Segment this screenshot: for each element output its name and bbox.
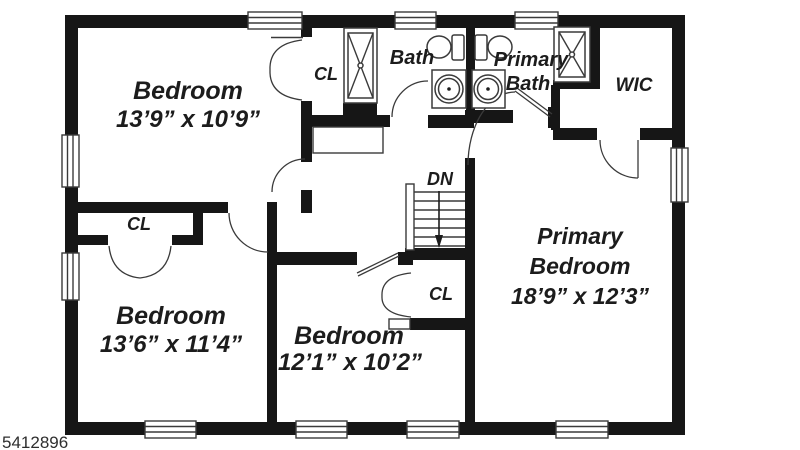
bedroom-bottom-left-dims: 13’6” x 11’4” (100, 331, 242, 358)
bedroom-top-left-dims: 13’9” x 10’9” (116, 106, 260, 133)
wall-segment (65, 15, 78, 435)
window (671, 148, 688, 202)
wall-segment (305, 115, 390, 127)
window (515, 12, 558, 29)
window (62, 135, 79, 187)
window (62, 253, 79, 300)
window (556, 421, 608, 438)
wall-segment (551, 85, 560, 130)
wall-segment (465, 158, 475, 422)
primary-bath-label-1: Primary (494, 49, 569, 71)
wall-segment (640, 128, 672, 140)
floor-plan-page: Bedroom 13’9” x 10’9” Bedroom 13’6” x 11… (0, 0, 800, 450)
closet-top-label: CL (314, 64, 338, 84)
window (248, 12, 302, 29)
shower-bath (344, 28, 377, 103)
stairs-dn-label: DN (427, 169, 454, 189)
wall-segment (672, 15, 685, 435)
hall-linen-closet (313, 127, 383, 153)
wall-segment (277, 252, 357, 265)
bedroom-bottom-left-label: Bedroom (116, 302, 226, 330)
primary-bedroom-dims: 18’9” x 12’3” (511, 283, 650, 309)
primary-bath-label-2: Bath (506, 73, 550, 95)
sink-vanity-bath (432, 70, 466, 108)
wall-segment (78, 202, 228, 213)
bedroom-bottom-mid-dims: 12’1” x 10’2” (278, 349, 422, 376)
window (395, 12, 436, 29)
wall-segment (343, 103, 377, 116)
wall-segment (301, 101, 312, 162)
closet-middle-label: CL (429, 284, 453, 304)
wall-segment (267, 202, 277, 422)
window (296, 421, 347, 438)
window (407, 421, 459, 438)
primary-bedroom-label-1: Primary (537, 223, 624, 249)
sink-vanity-primary-bath (472, 70, 505, 108)
wic-label: WIC (616, 75, 653, 96)
closet-left-label: CL (127, 214, 151, 234)
wall-segment (465, 110, 513, 123)
primary-bedroom-label-2: Bedroom (530, 253, 631, 279)
window (145, 421, 196, 438)
bedroom-bottom-mid-label: Bedroom (294, 322, 404, 350)
wall-segment (590, 15, 600, 89)
stair-rail (406, 184, 414, 250)
listing-id-watermark: 5412896 (2, 433, 68, 450)
bedroom-top-left-label: Bedroom (133, 77, 243, 105)
wall-segment (301, 190, 312, 213)
bath-label: Bath (390, 47, 434, 69)
floor-plan: Bedroom 13’9” x 10’9” Bedroom 13’6” x 11… (0, 0, 800, 450)
wall-segment (78, 235, 108, 245)
wall-segment (193, 213, 203, 240)
wall-segment (410, 318, 468, 330)
